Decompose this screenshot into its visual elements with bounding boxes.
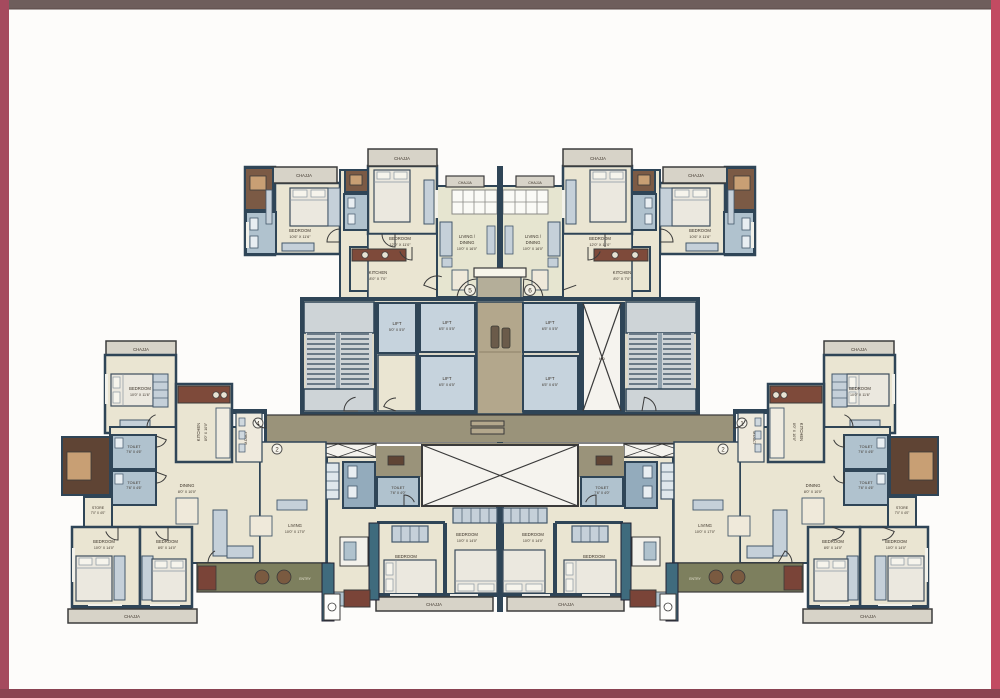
svg-text:12'0" X 11'0": 12'0" X 11'0" <box>589 243 611 247</box>
svg-text:KITCHEN: KITCHEN <box>196 423 201 441</box>
svg-text:TOILET: TOILET <box>859 481 873 485</box>
svg-text:BEDROOM: BEDROOM <box>395 554 417 559</box>
svg-text:DINING: DINING <box>526 240 541 245</box>
svg-text:8'0" X 7'0": 8'0" X 7'0" <box>613 277 631 281</box>
svg-text:BEDROOM: BEDROOM <box>849 386 871 391</box>
svg-text:CHAJJA: CHAJJA <box>860 614 876 619</box>
svg-text:BEDROOM: BEDROOM <box>583 554 605 559</box>
svg-text:10'0" X 17'0": 10'0" X 17'0" <box>285 530 306 534</box>
svg-text:TOILET: TOILET <box>391 486 405 490</box>
svg-text:LIFT: LIFT <box>545 320 554 325</box>
svg-text:7'6" X 4'6": 7'6" X 4'6" <box>126 486 142 490</box>
svg-text:LIFT: LIFT <box>545 376 554 381</box>
svg-text:KITCHEN: KITCHEN <box>613 270 631 275</box>
svg-text:LIVING: LIVING <box>698 523 712 528</box>
svg-text:CHAJJA: CHAJJA <box>296 173 312 178</box>
svg-text:BEDROOM: BEDROOM <box>522 532 544 537</box>
svg-text:TOILET: TOILET <box>127 445 141 449</box>
svg-text:STORE: STORE <box>92 506 105 510</box>
svg-text:LIFT: LIFT <box>442 320 451 325</box>
svg-text:BEDROOM: BEDROOM <box>389 236 411 241</box>
svg-text:LIVING /: LIVING / <box>525 234 542 239</box>
svg-text:CHAJJA: CHAJJA <box>394 156 410 161</box>
svg-text:TOILET: TOILET <box>127 481 141 485</box>
svg-text:LIFT: LIFT <box>442 376 451 381</box>
svg-text:8'0" X 7'0": 8'0" X 7'0" <box>369 277 387 281</box>
svg-text:ENTRY: ENTRY <box>689 577 701 581</box>
svg-text:DINING: DINING <box>180 483 195 488</box>
svg-text:CHAJJA: CHAJJA <box>558 602 574 607</box>
svg-text:8'6" X 14'0": 8'6" X 14'0" <box>158 546 177 550</box>
svg-text:7'0" X 4'0": 7'0" X 4'0" <box>895 511 909 515</box>
svg-text:10'6" X 11'6": 10'6" X 11'6" <box>689 235 711 239</box>
svg-text:10'0" X 14'0": 10'0" X 14'0" <box>94 546 115 550</box>
svg-text:LIVING /: LIVING / <box>459 234 476 239</box>
svg-text:BEDROOM: BEDROOM <box>129 386 151 391</box>
svg-text:10'6" X 11'6": 10'6" X 11'6" <box>289 235 311 239</box>
svg-text:CHAJJA: CHAJJA <box>458 181 472 185</box>
svg-text:STORE: STORE <box>896 506 909 510</box>
svg-text:10'0" X 11'6": 10'0" X 11'6" <box>850 393 871 397</box>
svg-text:10'0" X 14'0": 10'0" X 14'0" <box>886 546 907 550</box>
svg-text:KITCHEN: KITCHEN <box>369 270 387 275</box>
svg-text:CHAJJA: CHAJJA <box>133 347 149 352</box>
svg-text:TOILET: TOILET <box>595 486 609 490</box>
svg-text:7'0" X 4'0": 7'0" X 4'0" <box>91 511 105 515</box>
svg-text:BEDROOM: BEDROOM <box>93 539 115 544</box>
svg-text:7'6" X 4'0": 7'6" X 4'0" <box>594 491 610 495</box>
svg-text:10'0" X 16'0": 10'0" X 16'0" <box>523 247 544 251</box>
svg-text:CHAJJA: CHAJJA <box>124 614 140 619</box>
svg-text:TOILET: TOILET <box>859 445 873 449</box>
svg-text:5'0" X 5'0": 5'0" X 5'0" <box>389 328 406 332</box>
svg-text:KITCHEN: KITCHEN <box>799 423 804 441</box>
svg-text:BEDROOM: BEDROOM <box>289 228 311 233</box>
svg-text:6: 6 <box>528 288 532 295</box>
svg-text:LIFT: LIFT <box>392 321 401 326</box>
svg-text:8'0" X 10'0": 8'0" X 10'0" <box>204 422 208 441</box>
svg-text:BEDROOM: BEDROOM <box>689 228 711 233</box>
svg-text:CHAJJA: CHAJJA <box>851 347 867 352</box>
svg-text:7'6" X 4'6": 7'6" X 4'6" <box>858 486 874 490</box>
svg-text:7'6" X 4'6": 7'6" X 4'6" <box>858 450 874 454</box>
svg-text:8'0" X 10'0": 8'0" X 10'0" <box>178 490 197 494</box>
svg-text:10'0" X 14'0": 10'0" X 14'0" <box>523 539 544 543</box>
svg-text:HD: HD <box>599 356 605 361</box>
svg-text:6'5" X 5'5": 6'5" X 5'5" <box>542 327 559 331</box>
svg-text:6'5" X 6'5": 6'5" X 6'5" <box>542 383 559 387</box>
svg-text:7'6" X 4'0": 7'6" X 4'0" <box>390 491 406 495</box>
svg-text:BEDROOM: BEDROOM <box>456 532 478 537</box>
svg-text:10'0" X 17'0": 10'0" X 17'0" <box>695 530 716 534</box>
svg-text:8'0" X 10'0": 8'0" X 10'0" <box>804 490 823 494</box>
svg-text:5: 5 <box>468 288 472 295</box>
svg-text:LIVING: LIVING <box>288 523 302 528</box>
svg-text:8'0" X 10'0": 8'0" X 10'0" <box>792 423 796 442</box>
svg-text:6'5" X 5'5": 6'5" X 5'5" <box>439 327 456 331</box>
svg-text:10'0" X 11'6": 10'0" X 11'6" <box>130 393 151 397</box>
svg-text:CHAJJA: CHAJJA <box>528 181 542 185</box>
svg-text:10'0" X 16'0": 10'0" X 16'0" <box>457 247 478 251</box>
svg-text:6'5" X 6'5": 6'5" X 6'5" <box>439 383 456 387</box>
svg-text:8'6" X 14'0": 8'6" X 14'0" <box>824 546 843 550</box>
svg-text:DINING: DINING <box>460 240 475 245</box>
svg-text:CHAJJA: CHAJJA <box>688 173 704 178</box>
svg-text:10'0" X 14'0": 10'0" X 14'0" <box>457 539 478 543</box>
svg-text:CHAJJA: CHAJJA <box>426 602 442 607</box>
svg-text:BEDROOM: BEDROOM <box>885 539 907 544</box>
svg-text:7'6" X 4'6": 7'6" X 4'6" <box>126 450 142 454</box>
svg-text:BEDROOM: BEDROOM <box>589 236 611 241</box>
svg-text:CHAJJA: CHAJJA <box>590 156 606 161</box>
svg-text:DINING: DINING <box>806 483 821 488</box>
svg-text:ENTRY: ENTRY <box>299 577 311 581</box>
